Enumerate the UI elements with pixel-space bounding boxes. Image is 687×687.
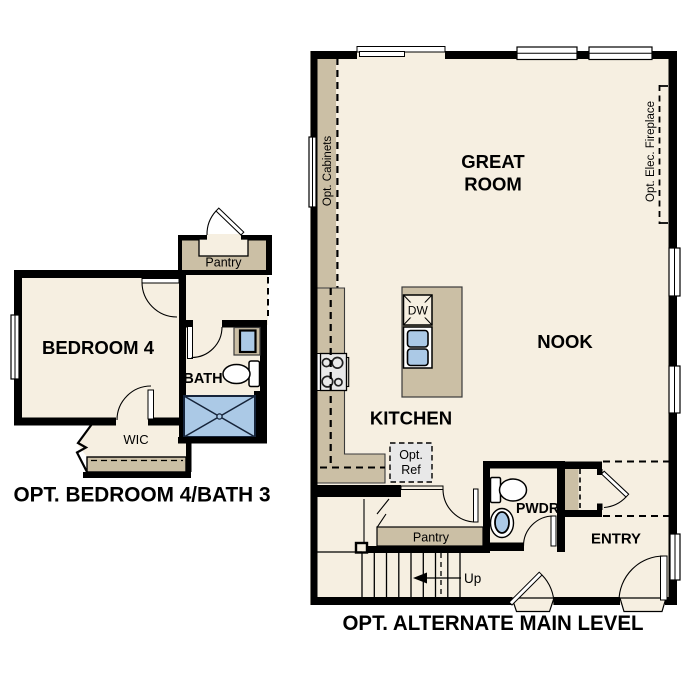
svg-text:Pantry: Pantry bbox=[205, 256, 242, 270]
svg-text:DW: DW bbox=[408, 304, 429, 318]
svg-text:Opt. Elec. Fireplace: Opt. Elec. Fireplace bbox=[645, 101, 657, 202]
svg-text:WIC: WIC bbox=[123, 432, 148, 447]
svg-text:Up: Up bbox=[464, 571, 481, 586]
svg-text:NOOK: NOOK bbox=[537, 331, 593, 352]
svg-text:Opt.: Opt. bbox=[399, 448, 423, 462]
svg-text:PWDR: PWDR bbox=[516, 501, 560, 517]
svg-text:ENTRY: ENTRY bbox=[591, 532, 641, 548]
svg-text:Ref: Ref bbox=[401, 463, 421, 477]
svg-text:BATH: BATH bbox=[183, 371, 222, 387]
svg-text:BEDROOM 4: BEDROOM 4 bbox=[42, 337, 155, 358]
svg-text:Pantry: Pantry bbox=[413, 531, 450, 545]
svg-text:GREAT: GREAT bbox=[461, 151, 525, 172]
svg-text:Opt. Cabinets: Opt. Cabinets bbox=[322, 136, 334, 207]
svg-text:ROOM: ROOM bbox=[464, 174, 522, 195]
svg-text:OPT. BEDROOM 4/BATH 3: OPT. BEDROOM 4/BATH 3 bbox=[14, 483, 271, 507]
svg-text:OPT. ALTERNATE MAIN LEVEL: OPT. ALTERNATE MAIN LEVEL bbox=[343, 611, 644, 635]
svg-text:KITCHEN: KITCHEN bbox=[370, 408, 452, 429]
